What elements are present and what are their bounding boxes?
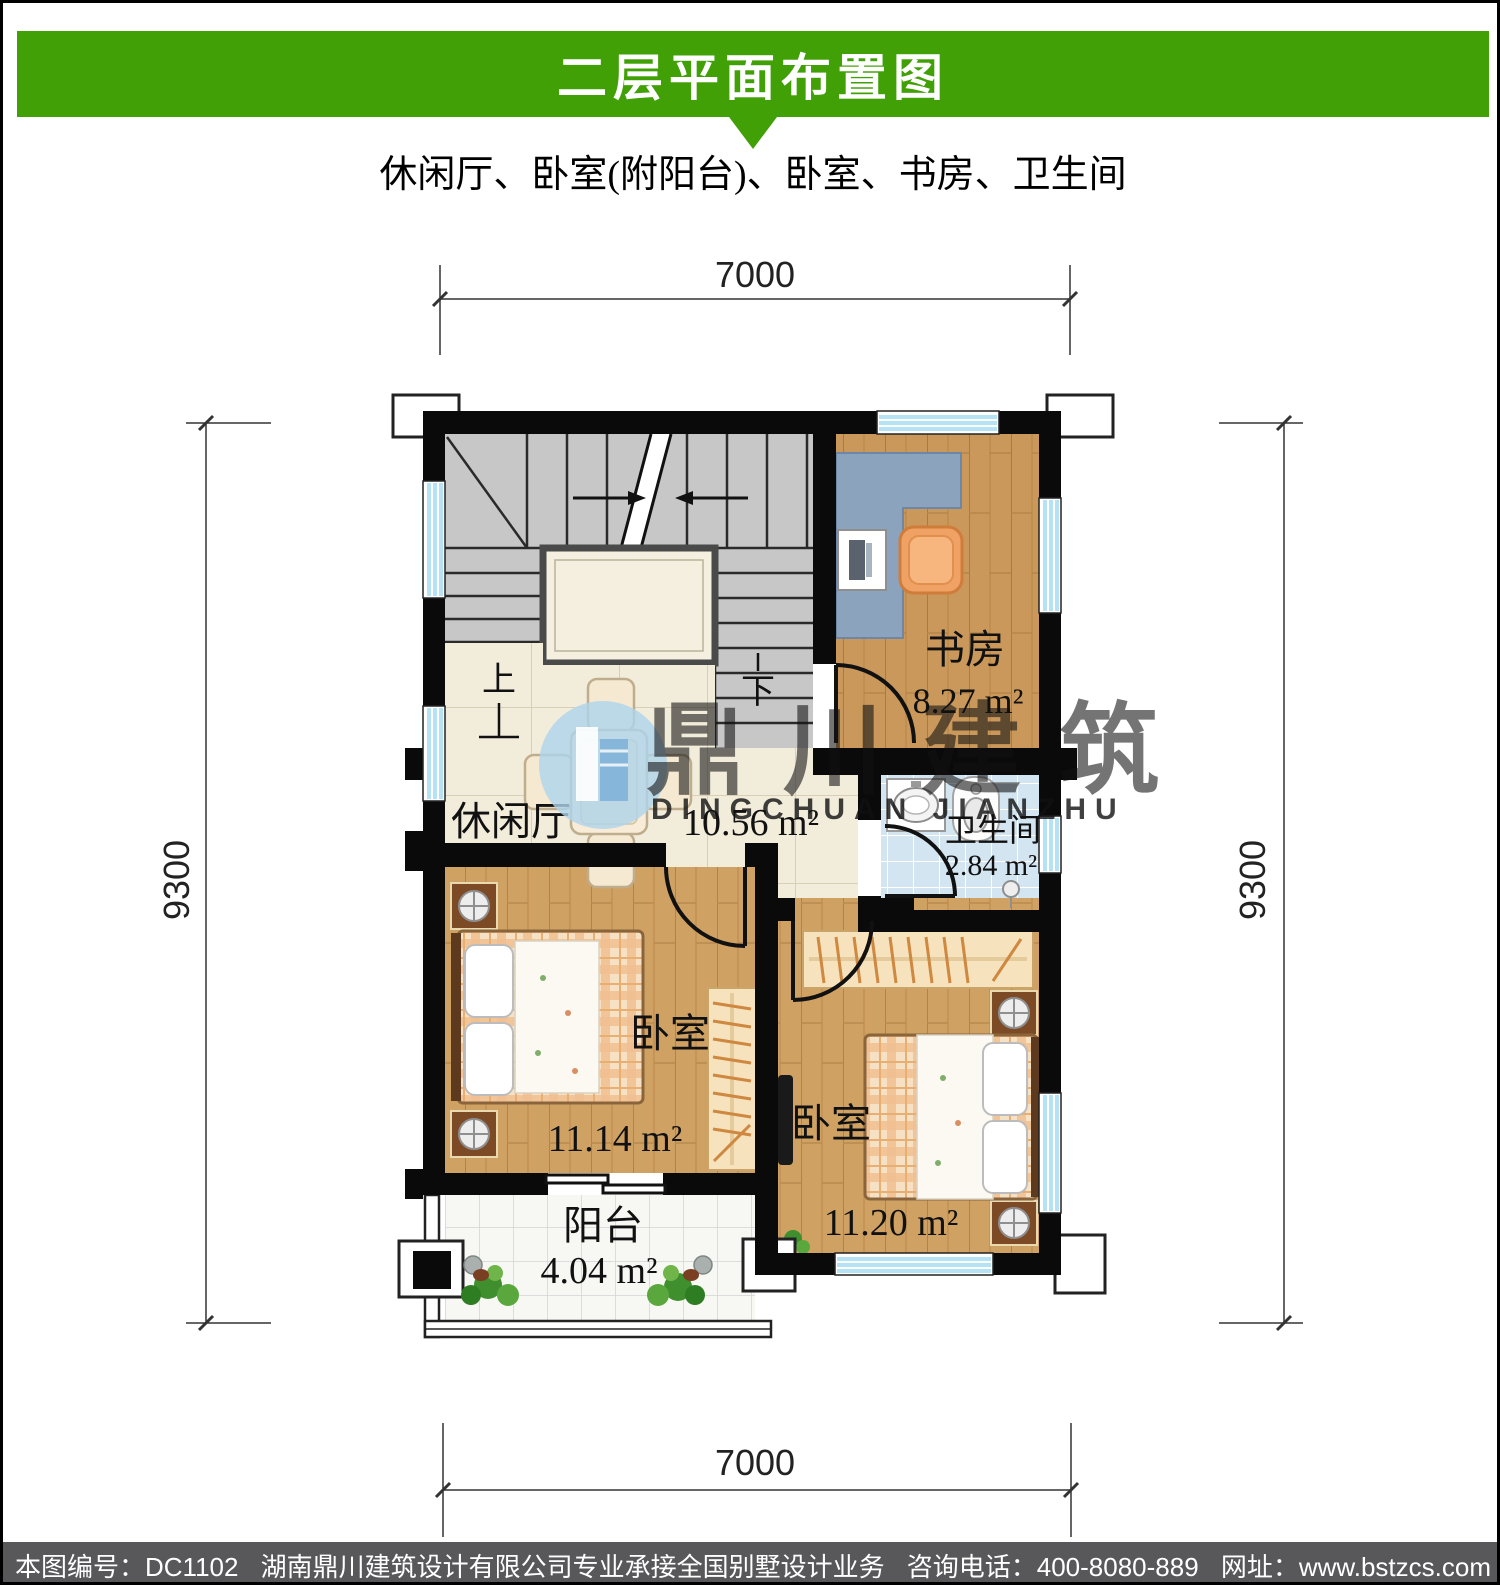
nightstand-icon <box>451 1111 497 1157</box>
double-bed-icon <box>451 931 643 1103</box>
window-left-upper <box>423 481 445 598</box>
door-balcony-sliding <box>546 1175 665 1193</box>
wardrobe-icon <box>803 931 1033 988</box>
floor-plan-page: 二层平面布置图 休闲厅、卧室(附阳台)、卧室、书房、卫生间 <box>0 0 1500 1585</box>
label-lounge: 休闲厅 <box>451 799 571 844</box>
balcony-corner-post <box>399 1241 463 1297</box>
nightstand-icon <box>991 991 1037 1035</box>
stair-well-void <box>543 548 715 663</box>
label-bedroom-right-area: 11.20 m² <box>824 1202 959 1244</box>
label-bedroom-left: 卧室 <box>630 1011 710 1056</box>
window-right-study <box>1039 498 1061 613</box>
nightstand-icon <box>991 1201 1037 1245</box>
label-balcony-area: 4.04 m² <box>541 1250 658 1292</box>
dimension-left: 9300 <box>156 416 271 1330</box>
watermark-en: DINGCHUAN JIANZHU <box>651 793 1126 826</box>
watermark: 鼎川建筑 DINGCHUAN JIANZHU <box>539 695 1197 829</box>
watermark-cn: 鼎川建筑 <box>645 695 1197 807</box>
label-balcony: 阳台 <box>563 1203 643 1248</box>
dim-top-value: 7000 <box>715 254 795 295</box>
nightstand-icon <box>451 883 497 929</box>
dim-left-value: 9300 <box>156 840 197 920</box>
floor-plan-drawing: 7000 7000 9300 9300 <box>3 3 1500 1585</box>
window-study-top <box>877 411 999 434</box>
label-bedroom-left-area: 11.14 m² <box>548 1118 683 1160</box>
window-left-lower <box>423 706 445 801</box>
footer-website: 网址：www.bstzcs.com <box>1221 1547 1491 1584</box>
footer-company: 湖南鼎川建筑设计有限公司专业承接全国别墅设计业务 <box>261 1547 885 1584</box>
footer-drawing-no: 本图编号：DC1102 <box>15 1547 238 1584</box>
dim-bottom-value: 7000 <box>715 1442 795 1483</box>
label-study: 书房 <box>925 627 1005 672</box>
double-bed-icon <box>865 1035 1039 1199</box>
dimension-right: 9300 <box>1219 416 1303 1330</box>
footer-bar: 本图编号：DC1102 湖南鼎川建筑设计有限公司专业承接全国别墅设计业务 咨询电… <box>3 1542 1500 1585</box>
label-bathroom-area: 2.84 m² <box>945 849 1037 882</box>
wardrobe-icon <box>708 988 756 1170</box>
window-bottom-bedroom <box>835 1253 993 1275</box>
footer-phone: 咨询电话：400-8080-889 <box>907 1547 1199 1584</box>
dimension-top: 7000 <box>433 254 1077 355</box>
dimension-bottom: 7000 <box>436 1423 1078 1537</box>
dim-right-value: 9300 <box>1232 840 1273 920</box>
window-right-bedroom <box>1039 1093 1061 1213</box>
label-stair-up: 上 <box>482 662 516 699</box>
label-bedroom-right: 卧室 <box>791 1101 871 1146</box>
